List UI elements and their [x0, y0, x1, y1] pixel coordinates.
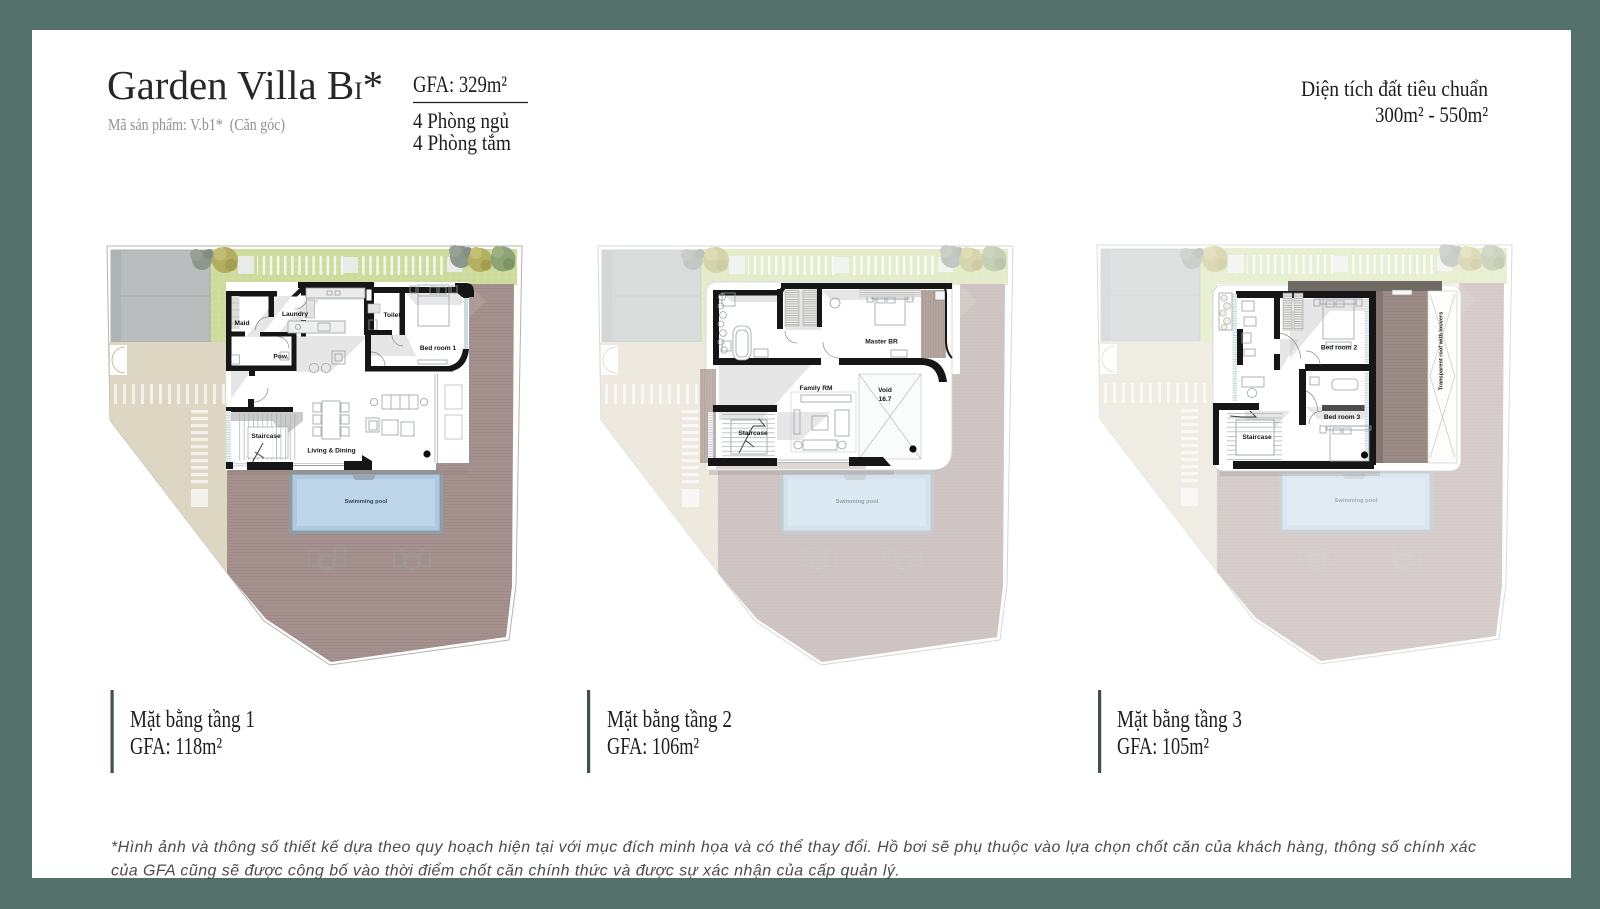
svg-text:Mặt bằng tầng 2: Mặt bằng tầng 2	[607, 707, 732, 733]
svg-text:16.7: 16.7	[879, 396, 892, 403]
svg-text:4 Phòng tắm: 4 Phòng tắm	[413, 130, 511, 155]
svg-text:Void: Void	[878, 387, 892, 394]
svg-text:Family RM: Family RM	[800, 385, 833, 392]
svg-text:GFA: 105m²: GFA: 105m²	[1117, 734, 1209, 760]
svg-text:Mặt bằng tầng 1: Mặt bằng tầng 1	[130, 707, 255, 733]
svg-text:Master BR: Master BR	[865, 339, 898, 346]
svg-text:Toilet: Toilet	[383, 312, 401, 319]
svg-text:GFA: 106m²: GFA: 106m²	[607, 734, 699, 760]
svg-text:Garden Villa BI*: Garden Villa BI*	[107, 62, 383, 108]
svg-text:Mã sản phẩm: V.b1* (Căn góc): Mã sản phẩm: V.b1* (Căn góc)	[108, 115, 285, 134]
svg-text:Living & Dining: Living & Dining	[307, 448, 355, 455]
svg-text:Staircase: Staircase	[738, 430, 768, 437]
svg-text:Bed room 3: Bed room 3	[1324, 414, 1361, 421]
svg-text:Maid: Maid	[234, 320, 249, 327]
svg-text:300m² - 550m²: 300m² - 550m²	[1375, 102, 1488, 127]
svg-text:Transparent roof with louvers: Transparent roof with louvers	[1439, 312, 1445, 391]
svg-text:Bed room 2: Bed room 2	[1321, 345, 1358, 352]
svg-text:Mặt bằng tầng 3: Mặt bằng tầng 3	[1117, 707, 1242, 733]
svg-text:GFA: 329m²: GFA: 329m²	[413, 72, 507, 97]
svg-text:Staircase: Staircase	[1242, 434, 1272, 441]
svg-text:của GFA cũng sẽ được công bố v: của GFA cũng sẽ được công bố vào thời đi…	[111, 862, 900, 880]
svg-text:Diện tích đất tiêu chuẩn: Diện tích đất tiêu chuẩn	[1301, 76, 1488, 101]
svg-text:Staircase: Staircase	[251, 433, 281, 440]
svg-text:Laundry: Laundry	[282, 311, 308, 318]
svg-text:Pow.: Pow.	[273, 354, 288, 361]
svg-text:Bed room 1: Bed room 1	[420, 345, 457, 352]
svg-text:GFA: 118m²: GFA: 118m²	[130, 734, 222, 760]
svg-text:*Hình ảnh và thông số thiết kế: *Hình ảnh và thông số thiết kế dựa theo …	[111, 838, 1476, 856]
